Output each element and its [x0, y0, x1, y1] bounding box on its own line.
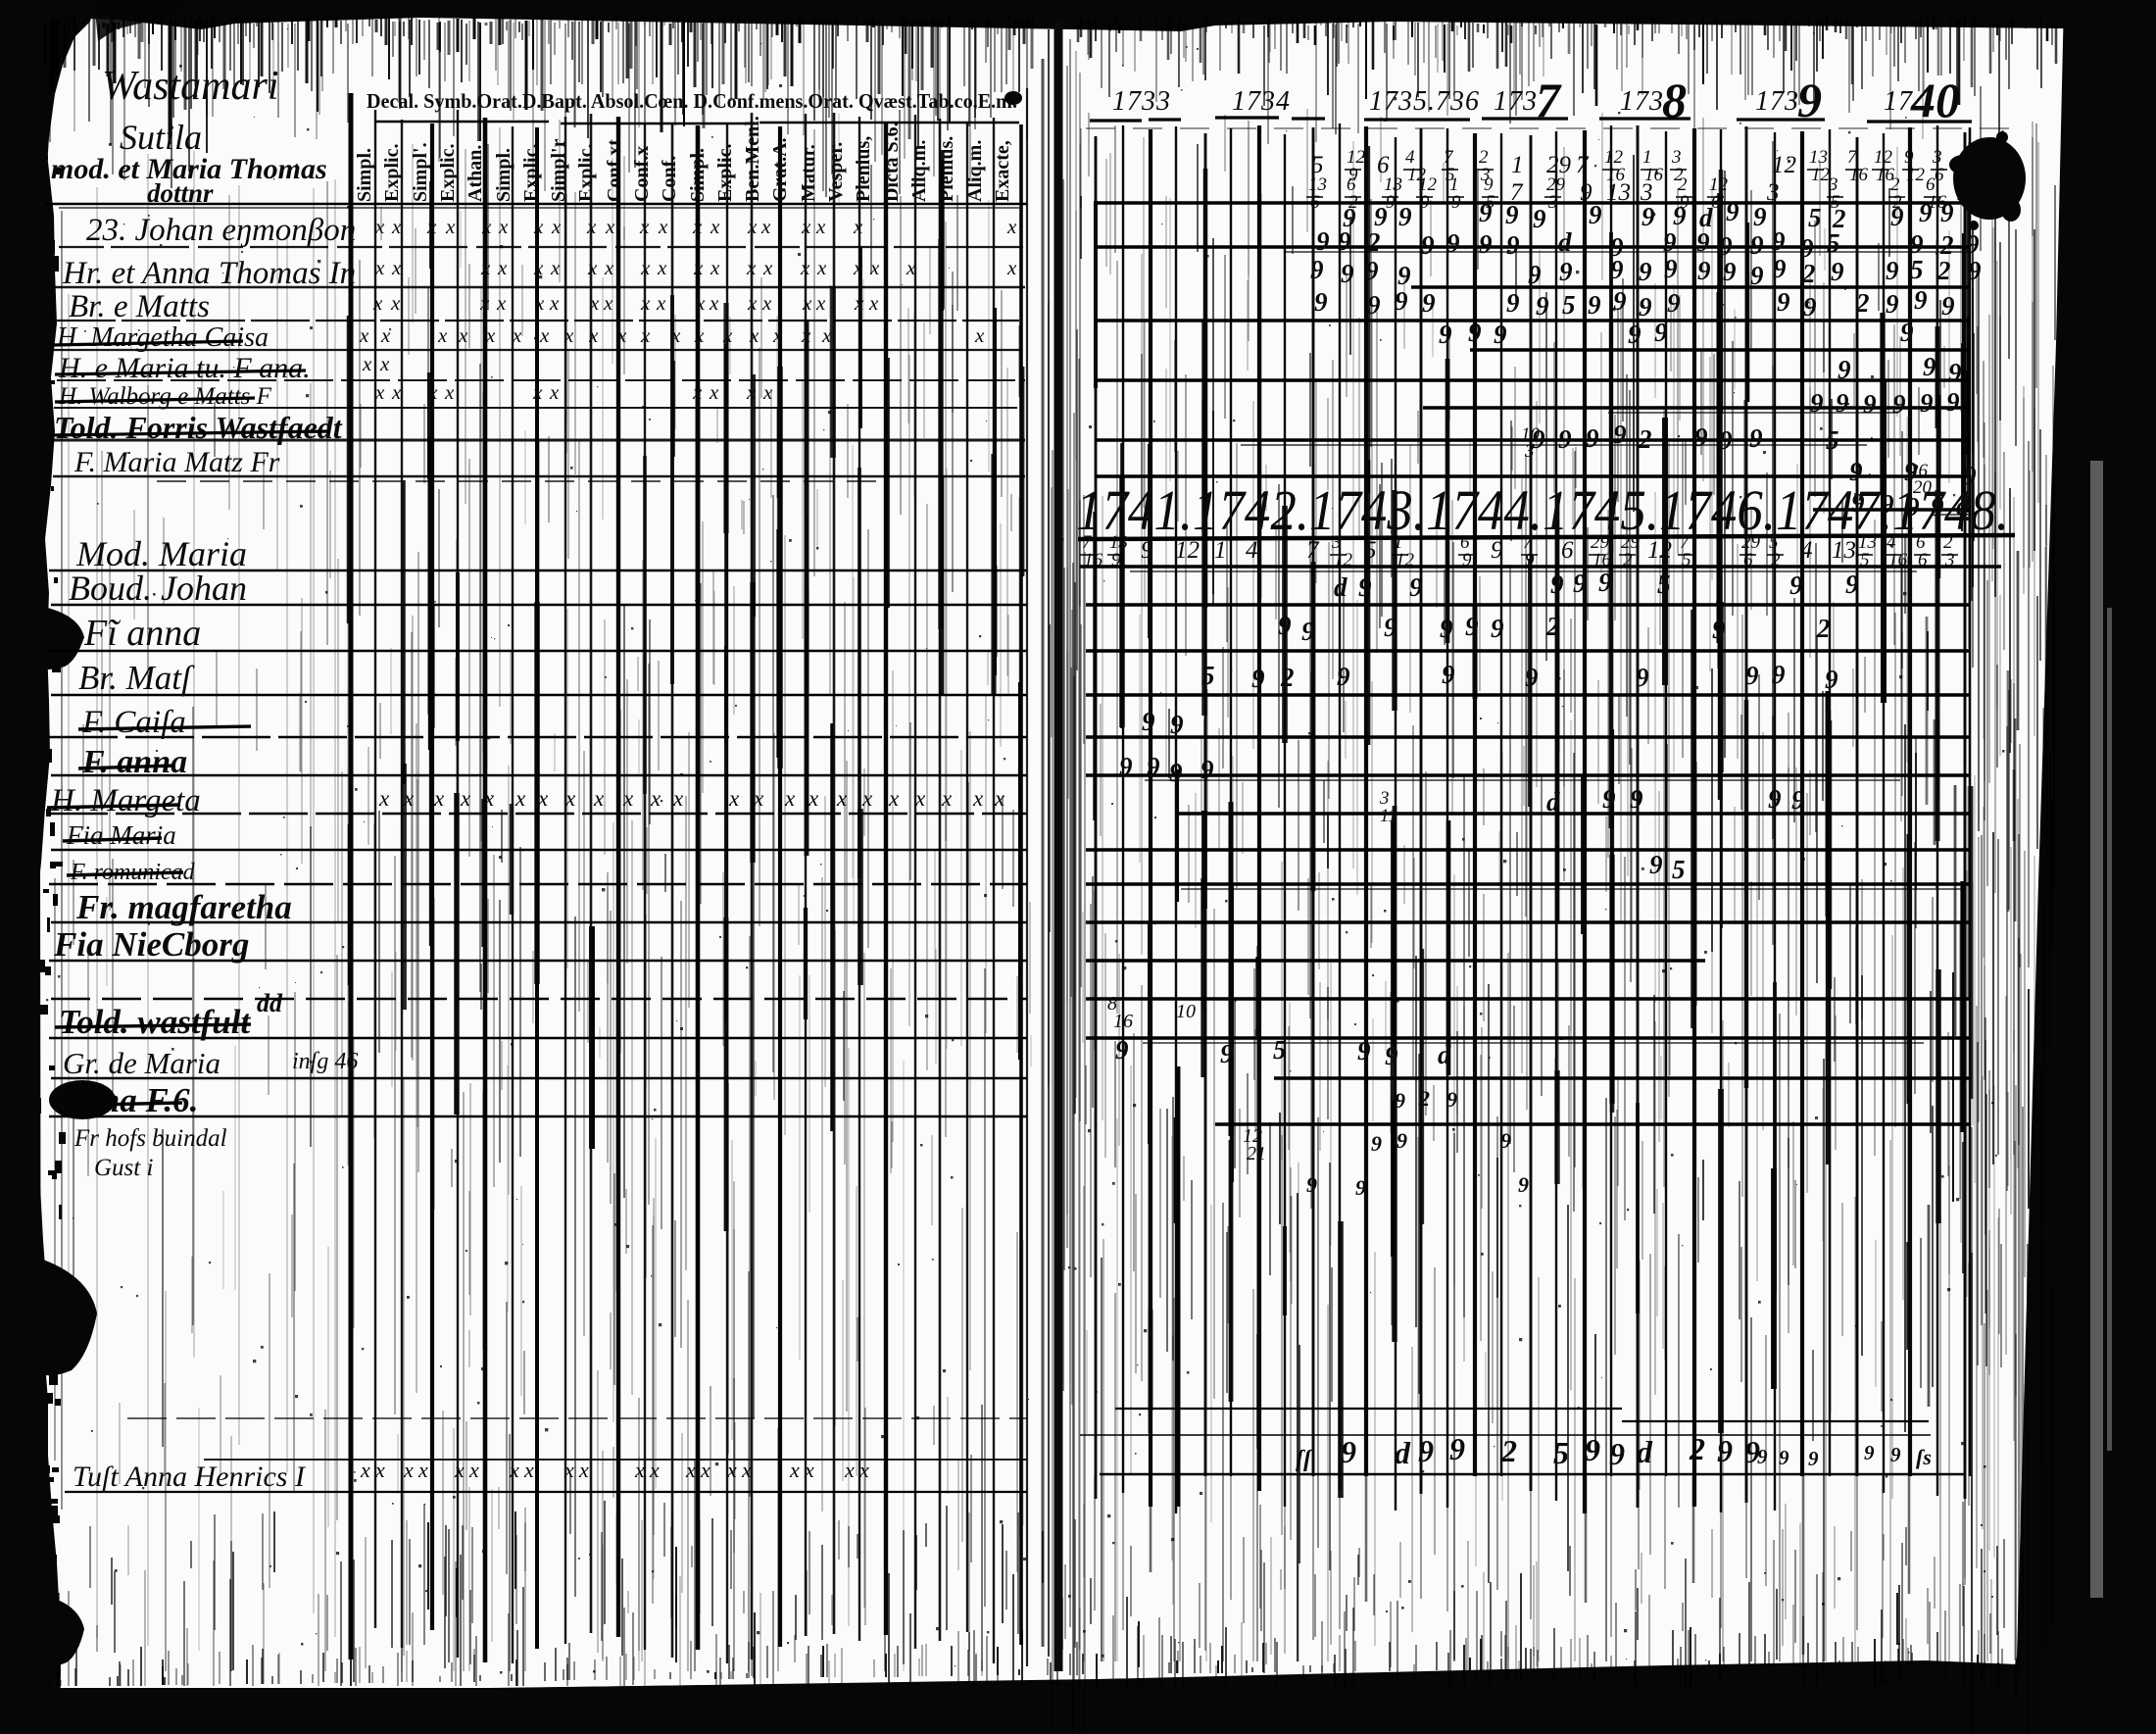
svg-text:9: 9	[1409, 572, 1423, 602]
svg-text:9: 9	[1301, 617, 1315, 646]
svg-text:9: 9	[1465, 612, 1479, 641]
svg-text:x: x	[700, 1458, 710, 1482]
svg-text:9: 9	[1446, 228, 1460, 258]
svg-text:d: d	[1395, 1435, 1411, 1470]
svg-text:17: 17	[1884, 86, 1913, 117]
svg-text:9: 9	[1717, 1433, 1733, 1468]
svg-text:9: 9	[1881, 489, 1894, 519]
svg-text:5: 5	[1860, 550, 1870, 570]
svg-text:x: x	[550, 256, 561, 279]
svg-text:9: 9	[1968, 256, 1982, 285]
svg-text:x: x	[914, 786, 926, 811]
svg-text:5: 5	[1910, 255, 1924, 284]
svg-text:9: 9	[1803, 292, 1817, 322]
svg-text:x: x	[726, 1458, 737, 1482]
svg-text:12: 12	[1175, 537, 1200, 564]
svg-text:x: x	[693, 256, 704, 279]
svg-text:9: 9	[1396, 1128, 1407, 1153]
svg-text:9: 9	[1371, 1131, 1382, 1156]
svg-text:12: 12	[1334, 550, 1353, 570]
svg-text:x: x	[710, 256, 720, 279]
svg-text:ſſ: ſſ	[1296, 1447, 1313, 1472]
svg-text:9: 9	[1836, 388, 1849, 418]
svg-text:9: 9	[1586, 423, 1599, 453]
svg-text:4: 4	[1246, 537, 1258, 564]
svg-text:9: 9	[1468, 318, 1482, 347]
svg-text:Explic.: Explic.	[714, 144, 736, 202]
svg-text:9: 9	[1649, 850, 1663, 879]
svg-text:x: x	[640, 256, 651, 279]
svg-text:x: x	[692, 380, 703, 404]
svg-text:x: x	[821, 323, 832, 347]
svg-text:x: x	[563, 1458, 574, 1482]
svg-text:9: 9	[1111, 550, 1121, 570]
svg-text:9: 9	[1750, 261, 1764, 290]
svg-text:2: 2	[1418, 1086, 1430, 1111]
svg-text:9: 9	[1753, 202, 1767, 231]
svg-text:9: 9	[1418, 1433, 1434, 1468]
svg-text:1: 1	[1511, 152, 1524, 178]
svg-text:9: 9	[1914, 285, 1928, 315]
svg-text:13: 13	[1832, 537, 1856, 564]
svg-text:6: 6	[1743, 550, 1753, 570]
svg-text:5: 5	[1672, 855, 1686, 884]
svg-text:x: x	[549, 291, 560, 315]
svg-text:9: 9	[1505, 200, 1519, 229]
svg-text:F. Caiſa: F. Caiſa	[81, 705, 186, 740]
svg-text:9: 9	[1115, 1035, 1129, 1065]
svg-text:9: 9	[1613, 420, 1627, 449]
svg-text:x: x	[417, 1458, 428, 1482]
svg-text:x: x	[454, 1458, 465, 1482]
svg-text:9: 9	[1355, 1175, 1366, 1200]
svg-text:x: x	[483, 786, 495, 811]
svg-text:Simpl.: Simpl.	[493, 148, 514, 202]
svg-text:Fia NieCborg: Fia NieCborg	[53, 925, 249, 964]
svg-text:dd: dd	[257, 989, 283, 1017]
svg-text:16: 16	[1849, 165, 1869, 185]
svg-text:x: x	[800, 256, 810, 279]
svg-text:Decal. Symb.Orat.D.Bapt. Absol: Decal. Symb.Orat.D.Bapt. Absol.Cœn. D.Co…	[367, 89, 1017, 113]
svg-text:x: x	[564, 786, 576, 811]
svg-text:x: x	[605, 215, 615, 238]
svg-text:16: 16	[1113, 1011, 1133, 1032]
svg-text:9: 9	[1757, 1445, 1768, 1468]
svg-text:x: x	[789, 1458, 800, 1482]
svg-text:9: 9	[1358, 572, 1372, 602]
svg-text:x: x	[460, 786, 471, 811]
svg-text:9: 9	[1777, 287, 1790, 317]
svg-text:9: 9	[1585, 1432, 1600, 1467]
svg-text:9: 9	[1963, 461, 1977, 490]
svg-text:Aliq.m.: Aliq.m.	[908, 140, 930, 202]
svg-text:Explic.: Explic.	[437, 144, 459, 202]
svg-text:x: x	[861, 786, 873, 811]
svg-text:x: x	[747, 291, 758, 315]
svg-text:9: 9	[1890, 1443, 1901, 1466]
svg-text:H. Walborg e Matts F: H. Walborg e Matts F	[58, 383, 272, 410]
svg-text:F. anna: F. anna	[81, 744, 187, 780]
svg-text:x: x	[593, 786, 605, 811]
svg-text:9: 9	[1712, 615, 1726, 644]
svg-text:9: 9	[1639, 292, 1652, 322]
svg-text:x: x	[532, 380, 543, 404]
svg-text:9: 9	[1142, 707, 1155, 736]
svg-text:9: 9	[1341, 1434, 1356, 1469]
svg-text:x: x	[760, 215, 771, 238]
svg-text:2: 2	[1545, 612, 1560, 641]
svg-text:9: 9	[1745, 661, 1759, 690]
svg-text:2: 2	[1280, 663, 1295, 692]
svg-text:x: x	[359, 323, 369, 347]
svg-text:x: x	[391, 256, 402, 279]
svg-text:x: x	[433, 786, 445, 811]
svg-text:x: x	[747, 215, 758, 238]
svg-text:9: 9	[1808, 1447, 1819, 1470]
svg-text:5: 5	[1808, 203, 1822, 232]
svg-text:9: 9	[1723, 257, 1737, 286]
svg-text:Matur.: Matur.	[798, 144, 819, 202]
svg-text:9: 9	[1528, 260, 1542, 289]
svg-text:6: 6	[1918, 550, 1928, 570]
svg-text:Conf.xt: Conf.xt	[604, 139, 625, 202]
svg-text:9: 9	[1357, 1036, 1371, 1065]
svg-text:x: x	[815, 291, 826, 315]
svg-text:Hr. et Anna Thomas In: Hr. et Anna Thomas In	[62, 256, 356, 291]
svg-text:5: 5	[1562, 290, 1576, 320]
svg-text:173: 173	[1620, 86, 1664, 117]
svg-text:9: 9	[1900, 318, 1914, 347]
svg-text:9: 9	[1750, 230, 1764, 260]
svg-text:x: x	[539, 323, 550, 347]
svg-text:1733: 1733	[1112, 86, 1171, 117]
svg-text:9: 9	[1316, 226, 1330, 256]
svg-text:x: x	[709, 380, 719, 404]
svg-text:9: 9	[1141, 537, 1153, 564]
svg-text:ſs: ſs	[1916, 1445, 1932, 1469]
svg-text:Wastamari: Wastamari	[102, 64, 279, 109]
svg-text:x: x	[994, 786, 1005, 811]
svg-text:9: 9	[1825, 665, 1838, 694]
svg-text:Conf.x: Conf.x	[631, 146, 653, 202]
svg-text:Athan.: Athan.	[465, 145, 486, 202]
svg-text:Ben.Menl.: Ben.Menl.	[742, 116, 763, 202]
svg-text:9: 9	[1420, 192, 1430, 213]
svg-text:x: x	[374, 215, 385, 238]
svg-text:9: 9	[1789, 570, 1803, 600]
svg-text:9: 9	[1772, 660, 1786, 689]
svg-text:x: x	[437, 323, 448, 347]
svg-text:9: 9	[1479, 198, 1493, 227]
svg-text:Grat.A.: Grat.A.	[769, 137, 791, 202]
svg-text:Fĩ anna: Fĩ anna	[83, 613, 201, 654]
svg-text:9: 9	[1573, 569, 1587, 598]
svg-text:d: d	[1956, 491, 1970, 520]
svg-text:x: x	[481, 215, 492, 238]
svg-text:9: 9	[1664, 254, 1678, 283]
svg-text:x: x	[512, 323, 522, 347]
svg-text:x: x	[640, 323, 651, 347]
svg-text:Plenius.: Plenius.	[936, 136, 957, 202]
svg-text:9: 9	[1923, 352, 1936, 381]
svg-text:Exacte,: Exacte,	[992, 140, 1013, 202]
svg-text:9: 9	[1440, 614, 1453, 643]
svg-text:x: x	[634, 1458, 645, 1482]
svg-text:6: 6	[1935, 165, 1944, 185]
svg-text:x: x	[578, 1458, 589, 1482]
svg-text:x: x	[854, 291, 864, 315]
svg-text:x: x	[603, 291, 613, 315]
svg-text:x: x	[391, 380, 402, 404]
svg-text:x: x	[741, 1458, 752, 1482]
svg-text:3: 3	[1944, 550, 1955, 570]
svg-text:x: x	[551, 215, 562, 238]
svg-text:2: 2	[1689, 1431, 1705, 1466]
svg-text:9: 9	[1831, 257, 1844, 286]
svg-text:x: x	[497, 256, 508, 279]
svg-text:x: x	[836, 786, 848, 811]
svg-text:1734: 1734	[1232, 86, 1291, 117]
svg-text:9: 9	[1506, 230, 1520, 260]
svg-text:9: 9	[1948, 358, 1962, 387]
svg-text:9: 9	[1588, 290, 1601, 320]
svg-text:9: 9	[1628, 320, 1641, 349]
svg-text:7: 7	[1306, 537, 1320, 564]
svg-text:9: 9	[1696, 227, 1710, 257]
svg-text:x: x	[640, 291, 651, 315]
svg-text:x: x	[378, 786, 390, 811]
svg-text:9: 9	[1337, 662, 1350, 691]
svg-text:H. e Maria tu. F ana.: H. e Maria tu. F ana.	[58, 352, 311, 384]
svg-text:x: x	[587, 256, 598, 279]
svg-text:9: 9	[1278, 611, 1292, 640]
svg-text:9: 9	[1906, 492, 1920, 521]
svg-text:x: x	[639, 215, 650, 238]
svg-text:9: 9	[1550, 570, 1564, 599]
svg-text:x: x	[749, 323, 759, 347]
svg-text:Fr hofs buindal: Fr hofs buindal	[73, 1125, 227, 1152]
svg-text:x: x	[622, 786, 634, 811]
svg-text:9: 9	[1849, 457, 1863, 486]
svg-text:2: 2	[1771, 550, 1781, 570]
svg-text:x: x	[1006, 256, 1017, 279]
svg-text:9: 9	[1609, 1436, 1625, 1471]
svg-text:9: 9	[1851, 488, 1865, 518]
svg-text:d: d	[1558, 227, 1572, 257]
svg-text:9: 9	[1525, 550, 1535, 570]
svg-text:9: 9	[1890, 202, 1904, 231]
svg-text:9: 9	[1654, 318, 1668, 347]
svg-text:9: 9	[1494, 320, 1507, 349]
svg-text:16: 16	[1084, 550, 1103, 570]
svg-text:x: x	[514, 786, 526, 811]
svg-text:x: x	[533, 215, 544, 238]
svg-text:16: 16	[1888, 550, 1908, 570]
svg-text:x: x	[858, 1458, 869, 1482]
svg-text:Explic.: Explic.	[575, 144, 597, 202]
svg-text:x: x	[853, 215, 863, 238]
svg-text:9: 9	[1726, 197, 1739, 226]
svg-text:9: 9	[1598, 568, 1612, 597]
svg-text:x: x	[533, 256, 544, 279]
svg-text:9: 9	[1772, 226, 1786, 256]
svg-text:x: x	[426, 215, 437, 238]
svg-text:x: x	[374, 1458, 385, 1482]
svg-text:Explic.: Explic.	[381, 144, 403, 202]
svg-text:Gust i: Gust i	[94, 1155, 153, 1181]
svg-text:2: 2	[1855, 288, 1870, 318]
svg-text:x: x	[380, 323, 391, 347]
svg-text:3: 3	[1524, 441, 1535, 462]
svg-text:9: 9	[1462, 550, 1472, 570]
svg-text:13: 13	[1606, 179, 1631, 206]
svg-text:x: x	[374, 380, 385, 404]
svg-text:x: x	[941, 786, 953, 811]
svg-text:x: x	[1006, 215, 1017, 238]
svg-text:9: 9	[1641, 202, 1655, 231]
svg-text:Explic.: Explic.	[520, 144, 542, 202]
svg-text:9: 9	[1365, 256, 1379, 285]
svg-text:Br. Matſ: Br. Matſ	[78, 659, 195, 697]
svg-text:9: 9	[1451, 192, 1461, 213]
svg-text:9: 9	[1559, 257, 1573, 286]
svg-text:x: x	[801, 323, 811, 347]
svg-text:9: 9	[1442, 660, 1455, 689]
svg-text:x: x	[784, 786, 796, 811]
svg-text:3: 3	[1766, 179, 1780, 206]
svg-text:9: 9	[1119, 752, 1133, 781]
svg-text:9: 9	[1491, 537, 1503, 564]
svg-text:2: 2	[1801, 259, 1816, 288]
svg-text:9: 9	[1602, 784, 1616, 814]
svg-text:x: x	[761, 291, 772, 315]
svg-text:x: x	[888, 786, 900, 811]
svg-text:x: x	[534, 291, 545, 315]
svg-text:9: 9	[1673, 201, 1687, 230]
svg-text:11: 11	[1380, 806, 1397, 826]
svg-text:x: x	[403, 1458, 414, 1482]
svg-text:9: 9	[1931, 492, 1944, 521]
svg-text:9: 9	[1886, 289, 1899, 319]
svg-text:4: 4	[1800, 537, 1813, 564]
svg-text:x: x	[906, 256, 916, 279]
svg-text:x: x	[746, 256, 757, 279]
svg-text:Gr. de Maria: Gr. de Maria	[63, 1046, 220, 1080]
svg-text:10: 10	[1176, 1001, 1196, 1022]
svg-text:x: x	[808, 786, 819, 811]
svg-text:x: x	[802, 291, 812, 315]
svg-text:x: x	[362, 352, 372, 375]
svg-text:Told. Forris Wastfaedt: Told. Forris Wastfaedt	[54, 410, 343, 445]
svg-text:Fr. magfaretha: Fr. magfaretha	[75, 888, 292, 926]
svg-text:x: x	[589, 291, 600, 315]
svg-text:6: 6	[1711, 192, 1721, 213]
svg-text:5: 5	[1826, 425, 1839, 455]
svg-text:9: 9	[1697, 256, 1711, 285]
svg-text:x: x	[523, 1458, 534, 1482]
svg-text:12: 12	[1396, 550, 1415, 570]
svg-text:9: 9	[1341, 259, 1354, 288]
svg-text:9: 9	[1636, 663, 1649, 692]
svg-text:x: x	[722, 323, 733, 347]
svg-text:H. Margeta: H. Margeta	[50, 783, 201, 818]
svg-text:5: 5	[1682, 550, 1691, 570]
svg-text:9: 9	[1170, 710, 1184, 739]
svg-text:x: x	[869, 256, 880, 279]
svg-text:x: x	[710, 215, 720, 238]
svg-text:x: x	[444, 380, 455, 404]
svg-text:21: 21	[1247, 1143, 1266, 1164]
svg-text:x: x	[657, 256, 667, 279]
svg-text:9: 9	[1251, 664, 1265, 693]
svg-text:9: 9	[1768, 784, 1782, 814]
svg-text:x: x	[853, 256, 863, 279]
svg-text:9: 9	[1630, 784, 1643, 814]
svg-text:dottnr: dottnr	[147, 178, 214, 208]
svg-text:9: 9	[1479, 229, 1493, 259]
svg-text:9: 9	[1667, 288, 1681, 318]
svg-text:x: x	[480, 256, 491, 279]
svg-text:9: 9	[1886, 256, 1899, 285]
svg-text:9: 9	[1310, 255, 1324, 284]
svg-text:9: 9	[1719, 425, 1733, 455]
svg-text:173: 173	[1494, 86, 1538, 117]
svg-text:x: x	[563, 323, 574, 347]
svg-text:x: x	[458, 323, 468, 347]
svg-text:x: x	[391, 215, 402, 238]
svg-text:7: 7	[1576, 152, 1590, 178]
svg-text:9: 9	[1169, 758, 1183, 787]
svg-text:x: x	[753, 786, 764, 811]
svg-text:12: 12	[1811, 165, 1831, 185]
svg-text:x: x	[844, 1458, 855, 1482]
svg-text:9: 9	[1919, 198, 1933, 227]
svg-text:x: x	[762, 256, 773, 279]
svg-text:H. Margetha Caisa: H. Margetha Caisa	[56, 322, 269, 353]
svg-text:x: x	[804, 1458, 814, 1482]
svg-text:9: 9	[1421, 230, 1435, 260]
svg-text:9: 9	[1525, 663, 1539, 692]
svg-text:9: 9	[1639, 257, 1652, 286]
svg-text:9: 9	[1449, 1431, 1465, 1466]
svg-text:Simpl'.: Simpl'.	[410, 142, 431, 202]
svg-text:Simpl.: Simpl.	[354, 148, 375, 202]
svg-text:9: 9	[1845, 570, 1859, 599]
svg-text:9: 9	[1385, 1041, 1398, 1070]
svg-text:9: 9	[1367, 290, 1381, 320]
svg-text:Boud. Johan: Boud. Johan	[69, 569, 247, 608]
svg-text:5: 5	[1827, 228, 1840, 258]
svg-text:d: d	[1334, 572, 1347, 602]
svg-text:x: x	[360, 1458, 370, 1482]
svg-text:9: 9	[1506, 288, 1520, 318]
svg-text:x: x	[772, 323, 783, 347]
svg-text:Plenius,: Plenius,	[853, 136, 874, 202]
svg-text:5: 5	[1201, 661, 1215, 690]
svg-text:d: d	[1438, 1040, 1451, 1069]
svg-text:Tuſt Anna Henrics I: Tuſt Anna Henrics I	[73, 1461, 307, 1493]
svg-text:x: x	[390, 291, 401, 315]
svg-text:9: 9	[1663, 227, 1677, 257]
svg-text:9: 9	[1779, 1446, 1789, 1469]
svg-text:x: x	[379, 352, 390, 375]
svg-text:9: 9	[1589, 200, 1602, 229]
svg-text:d: d	[1546, 787, 1560, 817]
svg-text:x: x	[604, 256, 614, 279]
svg-text:F. Maria Matz Fr: F. Maria Matz Fr	[73, 446, 280, 478]
svg-text:9: 9	[1518, 1172, 1529, 1197]
svg-text:9: 9	[1491, 614, 1504, 643]
